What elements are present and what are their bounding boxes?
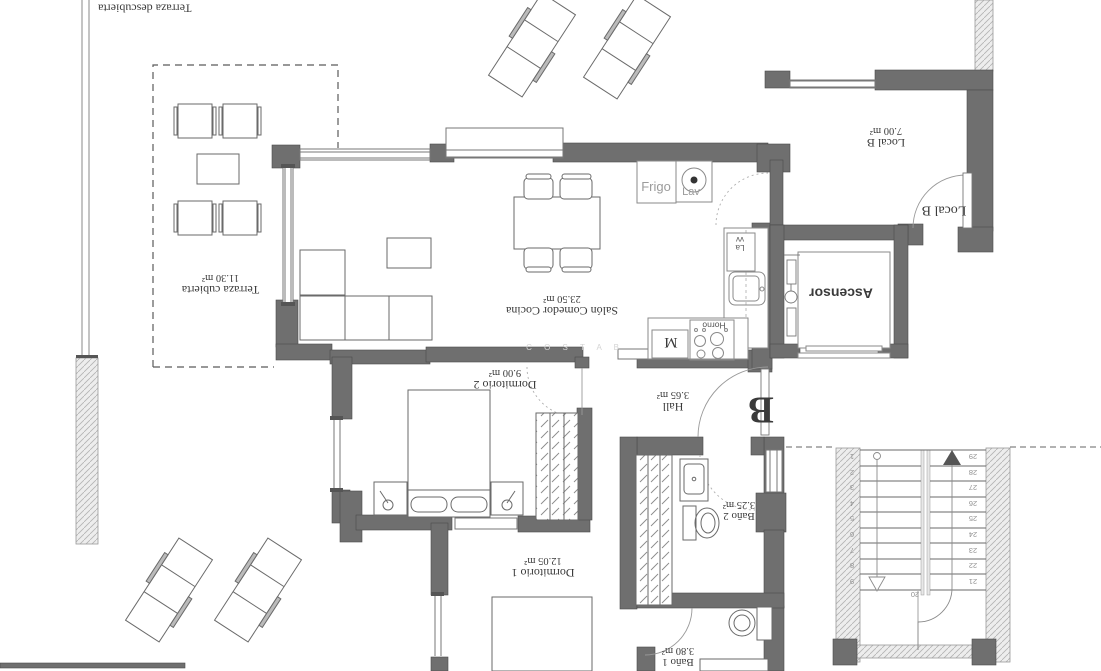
closet-strip [636, 455, 672, 605]
floorplan: Terraza descubierta Terraza cubierta 11.… [0, 0, 1101, 671]
nightstand [374, 482, 407, 515]
bedroom2-furniture [374, 390, 578, 520]
label-local-b-room: Local B 7.00 m² [841, 124, 931, 149]
terrace-chair [174, 201, 216, 235]
bed-dormitorio-1 [492, 597, 592, 671]
label-microondas: M [656, 333, 686, 350]
up-arrow [943, 450, 961, 465]
sunbed [122, 536, 216, 644]
label-terraza-cubierta: Terraza cubierta 11.30 m² [163, 271, 278, 296]
label-bano-1: Baño 1 3.80 m² [643, 644, 713, 668]
pillow [411, 497, 447, 512]
stair-walkline-up [918, 450, 961, 650]
terrace-chair [219, 104, 261, 138]
kitchen-door-arc [716, 173, 768, 225]
terrace-railing [76, 0, 98, 358]
terrace-chair [219, 201, 261, 235]
staircase [860, 450, 986, 650]
label-lav: Lav [677, 186, 705, 198]
label-apartment-b: B [740, 388, 782, 431]
stair-steps-right [930, 466, 986, 590]
label-salon: Salón Comedor Cocina 23.50 m² [487, 292, 637, 317]
label-terraza-descubierta: Terraza descubierta [85, 1, 205, 14]
label-hall: Hall 3.65 m² [633, 388, 713, 413]
label-ascensor: Ascensor [796, 285, 886, 301]
local-b-door-leaf [963, 173, 972, 228]
label-dormitorio-1: Dormitorio 1 12.05 m² [488, 554, 598, 579]
pillow [451, 497, 487, 512]
sunbed [211, 536, 305, 644]
stair-steps-left [860, 466, 921, 590]
watermark: C O S T A B [520, 344, 630, 353]
label-horno: Horno [694, 320, 734, 330]
terrace-table [197, 154, 239, 184]
toilet-bano1 [729, 607, 772, 640]
terrace-chair [174, 104, 216, 138]
label-frigo: Frigo [636, 180, 676, 195]
washbasin-bano2 [680, 459, 708, 501]
bathroom-fixtures [680, 459, 772, 671]
stair-walkline-down [869, 453, 885, 592]
wardrobe-dormitorio-2 [536, 413, 578, 520]
label-bano-2: Baño 2 3.25 m² [704, 498, 774, 522]
label-local-b-door: Local B [904, 202, 984, 218]
dining-table [514, 197, 600, 249]
side-table [387, 238, 431, 268]
sunbed [580, 0, 674, 101]
label-lavv: Lavv [735, 234, 745, 251]
terrace-furniture [174, 104, 261, 235]
sunbed [485, 0, 579, 99]
nightstand [491, 482, 523, 515]
label-dormitorio-2: Dormitorio 2 9.00 m² [450, 366, 560, 391]
